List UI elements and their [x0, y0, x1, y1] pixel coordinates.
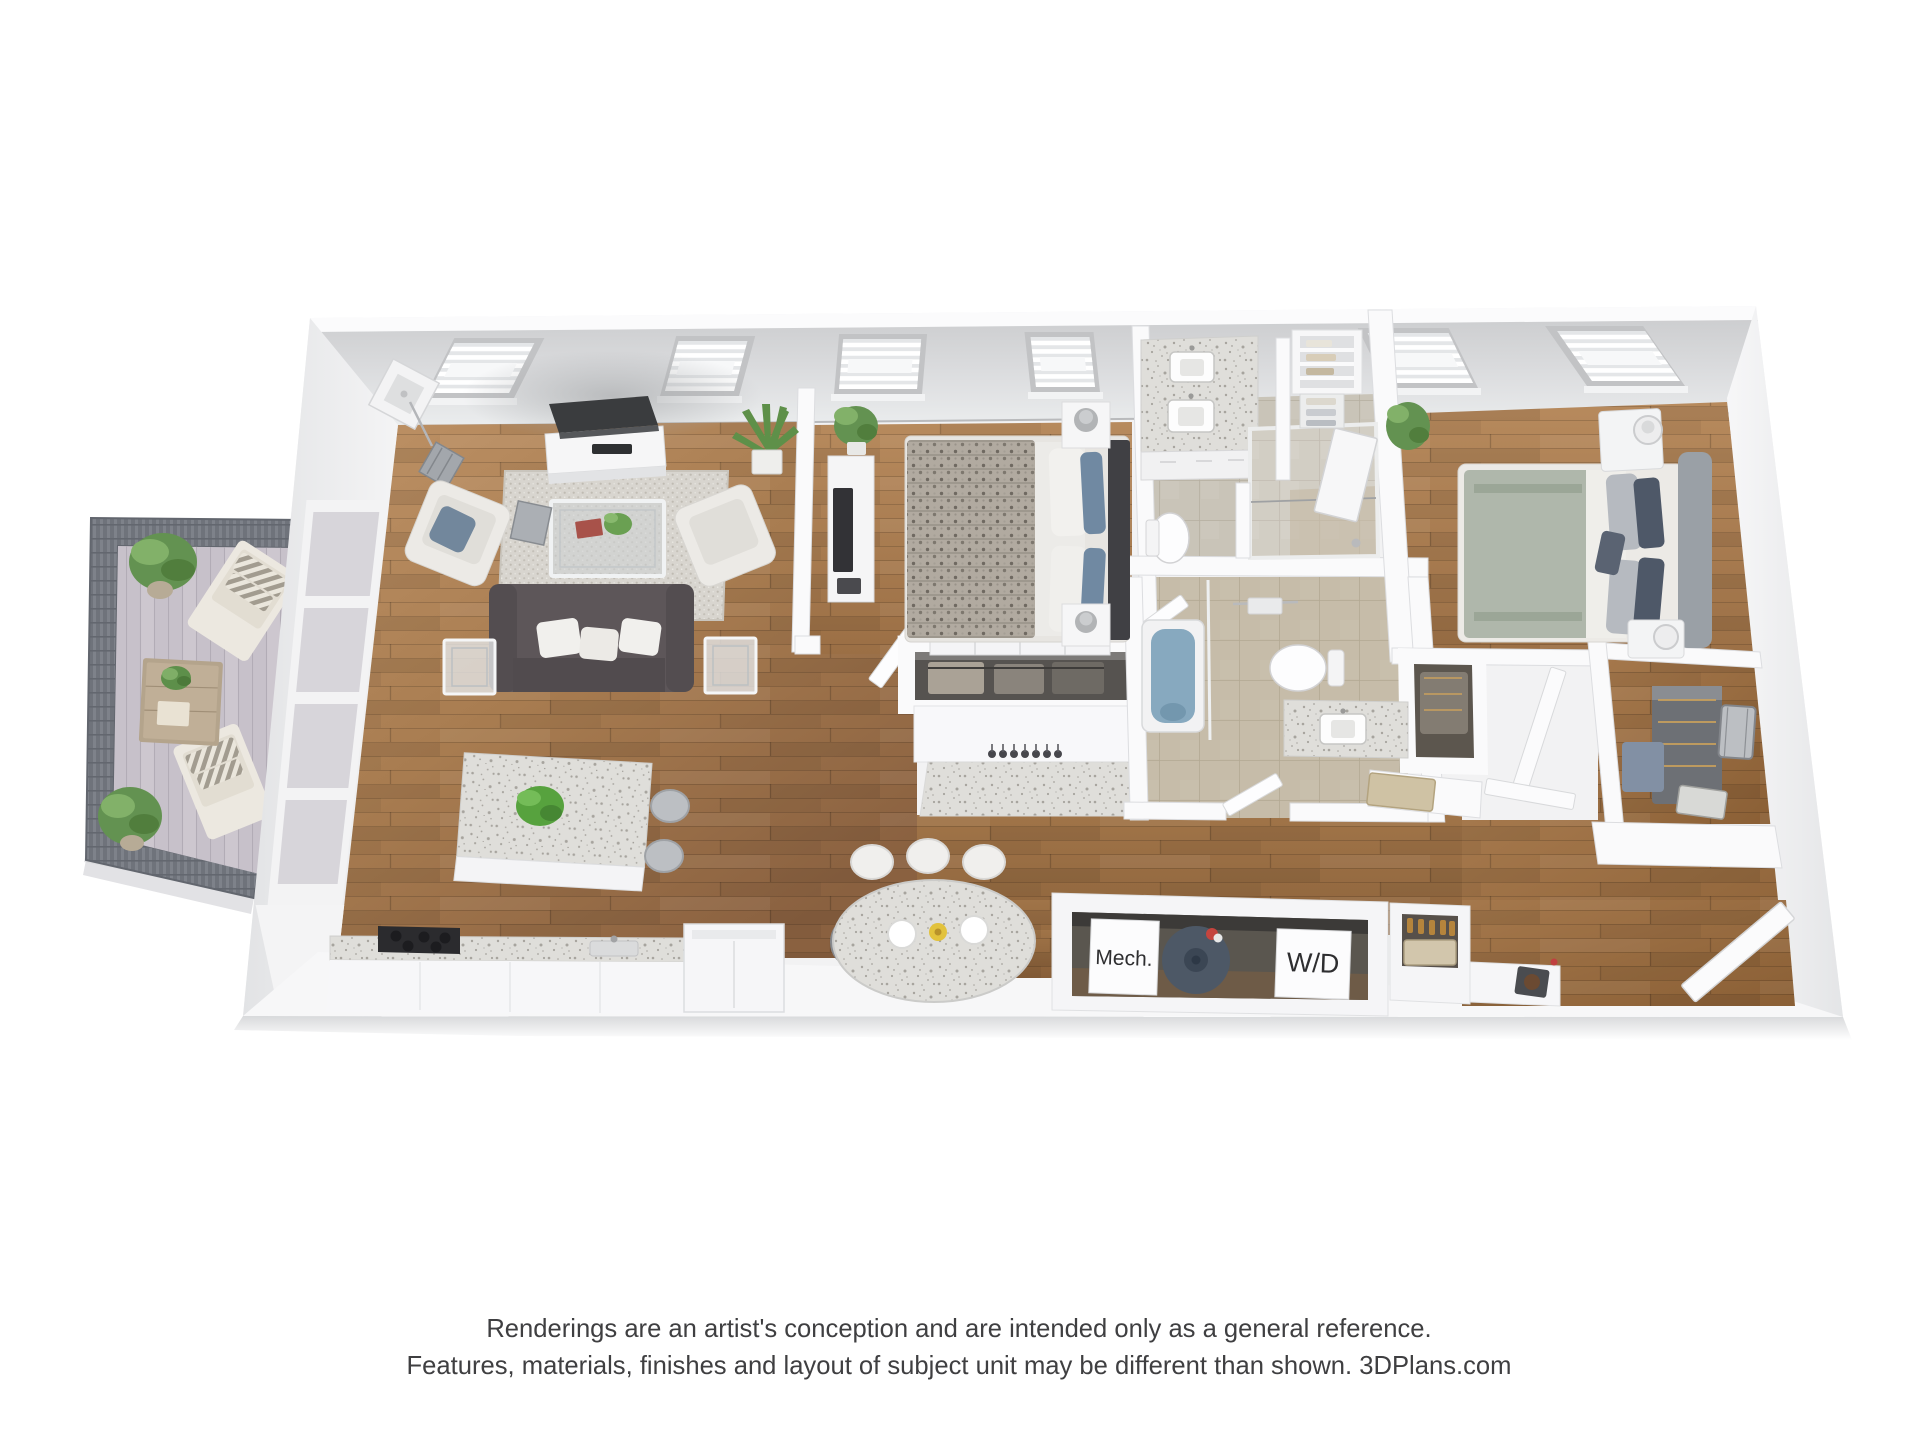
svg-text:Renderings are an artist's con: Renderings are an artist's conception an…: [486, 1315, 1431, 1343]
svg-text:W/D: W/D: [1286, 947, 1339, 979]
svg-text:Mech.: Mech.: [1095, 946, 1153, 971]
svg-text:Features, materials, finishes: Features, materials, finishes and layout…: [407, 1352, 1512, 1380]
